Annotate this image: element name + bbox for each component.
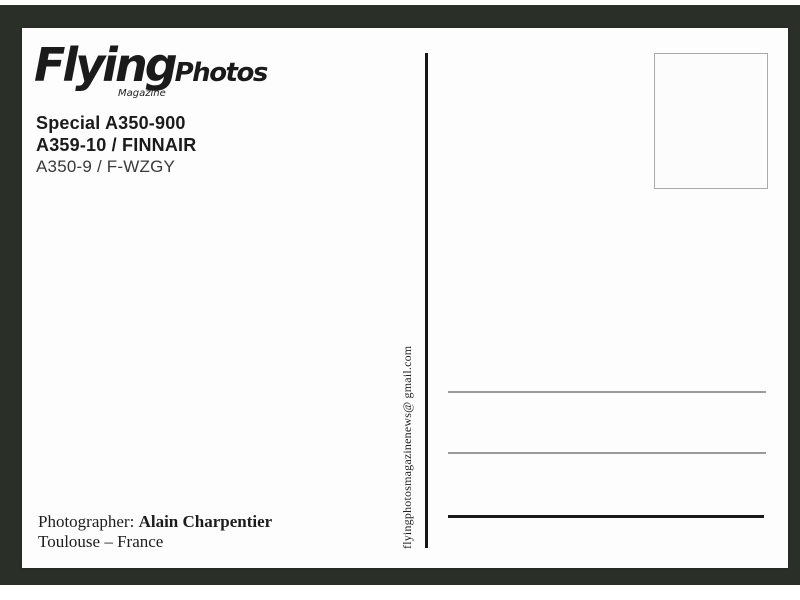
logo-brand-text: Flying xyxy=(34,38,175,92)
logo-tagline-text: Magazine xyxy=(118,88,166,99)
postcard-back: FlyingPhotos Magazine Special A350-900 A… xyxy=(22,28,788,568)
email-vertical-text: flyingphotosmagazinenews@ gmail.com xyxy=(400,397,414,549)
photographer-line: Photographer: Alain Charpentier xyxy=(38,512,272,532)
magazine-logo: FlyingPhotos Magazine xyxy=(34,42,267,88)
heading-aircraft: A359-10 / FINNAIR xyxy=(36,134,196,156)
subject-heading: Special A350-900 A359-10 / FINNAIR A350-… xyxy=(36,112,196,178)
address-line-3 xyxy=(448,515,764,518)
credits-block: Photographer: Alain Charpentier Toulouse… xyxy=(38,512,272,552)
heading-registration: A350-9 / F-WZGY xyxy=(36,156,196,178)
address-line-1 xyxy=(448,391,766,393)
location-text: Toulouse – France xyxy=(38,532,272,552)
photographer-name: Alain Charpentier xyxy=(139,512,273,531)
address-line-2 xyxy=(448,452,766,454)
photographer-label: Photographer: xyxy=(38,512,134,531)
stamp-box xyxy=(654,53,768,189)
center-divider-line xyxy=(425,53,428,548)
heading-special: Special A350-900 xyxy=(36,112,196,134)
logo-suffix-text: Photos xyxy=(175,58,267,88)
